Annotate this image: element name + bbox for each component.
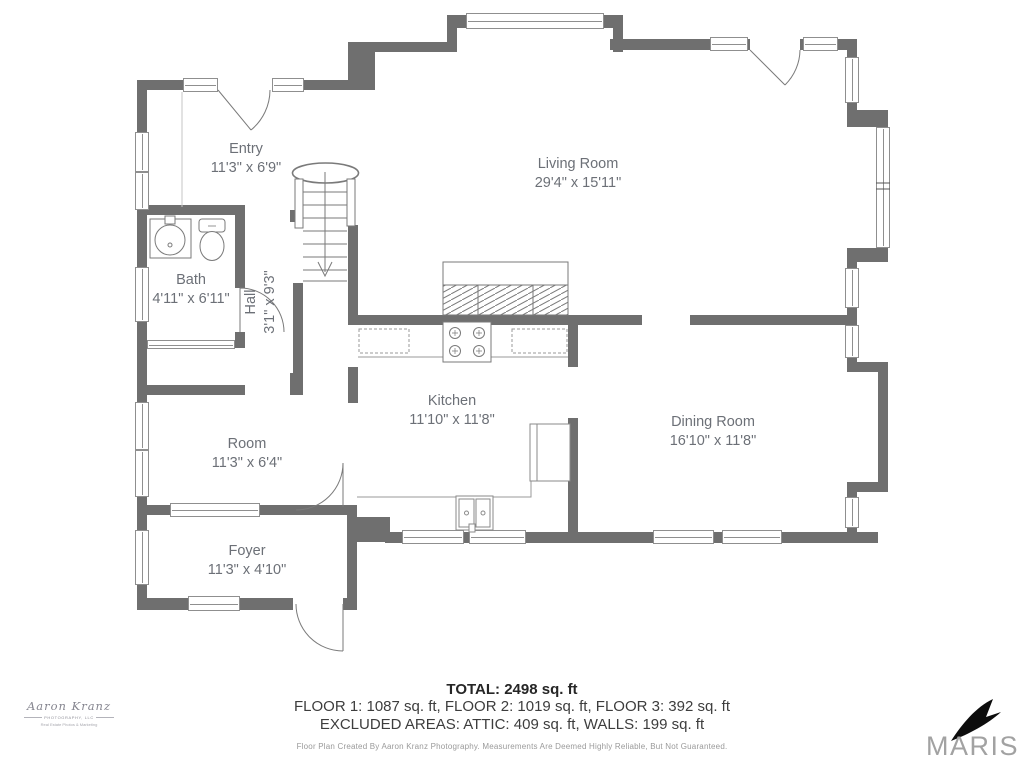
door-arc bbox=[218, 50, 800, 651]
cased-opening bbox=[170, 503, 260, 517]
wall-segment bbox=[847, 248, 888, 262]
excluded-areas: EXCLUDED AREAS: ATTIC: 409 sq. ft, WALLS… bbox=[0, 716, 1024, 733]
room-name: Bath bbox=[152, 271, 229, 290]
divider bbox=[24, 717, 42, 718]
door-opening bbox=[218, 78, 272, 92]
room-label-dining: Dining Room 16'10" x 11'8" bbox=[670, 413, 757, 451]
window bbox=[135, 402, 149, 450]
room-dims: 16'10" x 11'8" bbox=[670, 432, 757, 451]
window bbox=[845, 57, 859, 103]
cased-opening bbox=[147, 340, 235, 349]
wall-segment bbox=[358, 315, 642, 325]
room-dims: 3'1" x 9'3" bbox=[261, 270, 280, 333]
window bbox=[710, 37, 748, 51]
window bbox=[845, 325, 859, 358]
room-dims: 11'3" x 6'9" bbox=[211, 159, 281, 178]
wall-segment bbox=[568, 325, 578, 367]
bay-window bbox=[876, 127, 890, 248]
wall-segment bbox=[568, 418, 578, 533]
photographer-tagline: Real Estate Photos & Marketing bbox=[24, 722, 114, 727]
wall-segment bbox=[690, 315, 847, 325]
room-name: Living Room bbox=[535, 155, 622, 174]
window bbox=[135, 530, 149, 585]
room-dims: 29'4" x 15'11" bbox=[535, 174, 622, 193]
window bbox=[135, 450, 149, 497]
room-name: Dining Room bbox=[670, 413, 757, 432]
wall-segment bbox=[348, 225, 358, 325]
window bbox=[188, 596, 240, 611]
sink-icon bbox=[456, 496, 493, 532]
window bbox=[466, 13, 604, 29]
wall-segment bbox=[137, 385, 245, 395]
room-label-kitchen: Kitchen 11'10" x 11'8" bbox=[409, 392, 494, 430]
room-name: Hall bbox=[242, 270, 261, 333]
room-dims: 4'11" x 6'11" bbox=[152, 290, 229, 309]
door-opening bbox=[750, 37, 800, 51]
door-opening bbox=[293, 596, 343, 611]
window bbox=[135, 267, 149, 322]
stove-icon bbox=[443, 322, 491, 362]
window bbox=[135, 132, 149, 172]
toilet-icon bbox=[199, 219, 225, 261]
window bbox=[135, 172, 149, 210]
maris-logo: MARIS bbox=[926, 731, 1019, 762]
room-name: Kitchen bbox=[409, 392, 494, 411]
window bbox=[845, 268, 859, 308]
divider bbox=[96, 717, 114, 718]
room-label-entry: Entry 11'3" x 6'9" bbox=[211, 140, 281, 178]
room-name: Room bbox=[212, 435, 282, 454]
window bbox=[845, 497, 859, 528]
room-name: Foyer bbox=[208, 542, 286, 561]
fireplace-bump-bottom bbox=[847, 482, 888, 492]
basement-stairs bbox=[443, 262, 568, 315]
wall-segment bbox=[290, 373, 303, 385]
photographer-signature: Aaron Kranz bbox=[24, 699, 114, 713]
wall-segment bbox=[348, 367, 358, 403]
vanity-sink-icon bbox=[150, 216, 191, 258]
window bbox=[653, 530, 714, 544]
wall-segment bbox=[348, 42, 457, 52]
room-label-living: Living Room 29'4" x 15'11" bbox=[535, 155, 622, 193]
refrigerator bbox=[530, 424, 570, 481]
window bbox=[722, 530, 782, 544]
window bbox=[469, 530, 526, 544]
wall-segment bbox=[293, 283, 303, 385]
floor-plan: Entry 11'3" x 6'9" Living Room 29'4" x 1… bbox=[0, 0, 1024, 768]
window bbox=[272, 78, 304, 92]
room-label-room: Room 11'3" x 6'4" bbox=[212, 435, 282, 473]
wall-segment bbox=[235, 332, 245, 348]
disclaimer: Floor Plan Created By Aaron Kranz Photog… bbox=[0, 742, 1024, 751]
room-dims: 11'10" x 11'8" bbox=[409, 411, 494, 430]
photographer-subtitle: PHOTOGRAPHY, LLC bbox=[24, 715, 114, 720]
window bbox=[183, 78, 218, 92]
floor-areas: FLOOR 1: 1087 sq. ft, FLOOR 2: 1019 sq. … bbox=[0, 698, 1024, 715]
wall-segment bbox=[290, 385, 303, 395]
window bbox=[402, 530, 464, 544]
fireplace-bump-right bbox=[878, 362, 888, 492]
room-dims: 11'3" x 6'4" bbox=[212, 454, 282, 473]
room-label-hall: Hall 3'1" x 9'3" bbox=[242, 270, 280, 333]
wall-segment bbox=[137, 205, 245, 215]
total-area: TOTAL: 2498 sq. ft bbox=[0, 681, 1024, 698]
window bbox=[803, 37, 838, 51]
room-label-foyer: Foyer 11'3" x 4'10" bbox=[208, 542, 286, 580]
room-name: Entry bbox=[211, 140, 281, 159]
wall-segment bbox=[347, 505, 357, 610]
aaron-kranz-logo: Aaron Kranz PHOTOGRAPHY, LLC Real Estate… bbox=[24, 699, 114, 727]
room-label-bath: Bath 4'11" x 6'11" bbox=[152, 271, 229, 309]
room-dims: 11'3" x 4'10" bbox=[208, 561, 286, 580]
wall-segment bbox=[290, 210, 303, 222]
area-summary: TOTAL: 2498 sq. ft FLOOR 1: 1087 sq. ft,… bbox=[0, 681, 1024, 751]
